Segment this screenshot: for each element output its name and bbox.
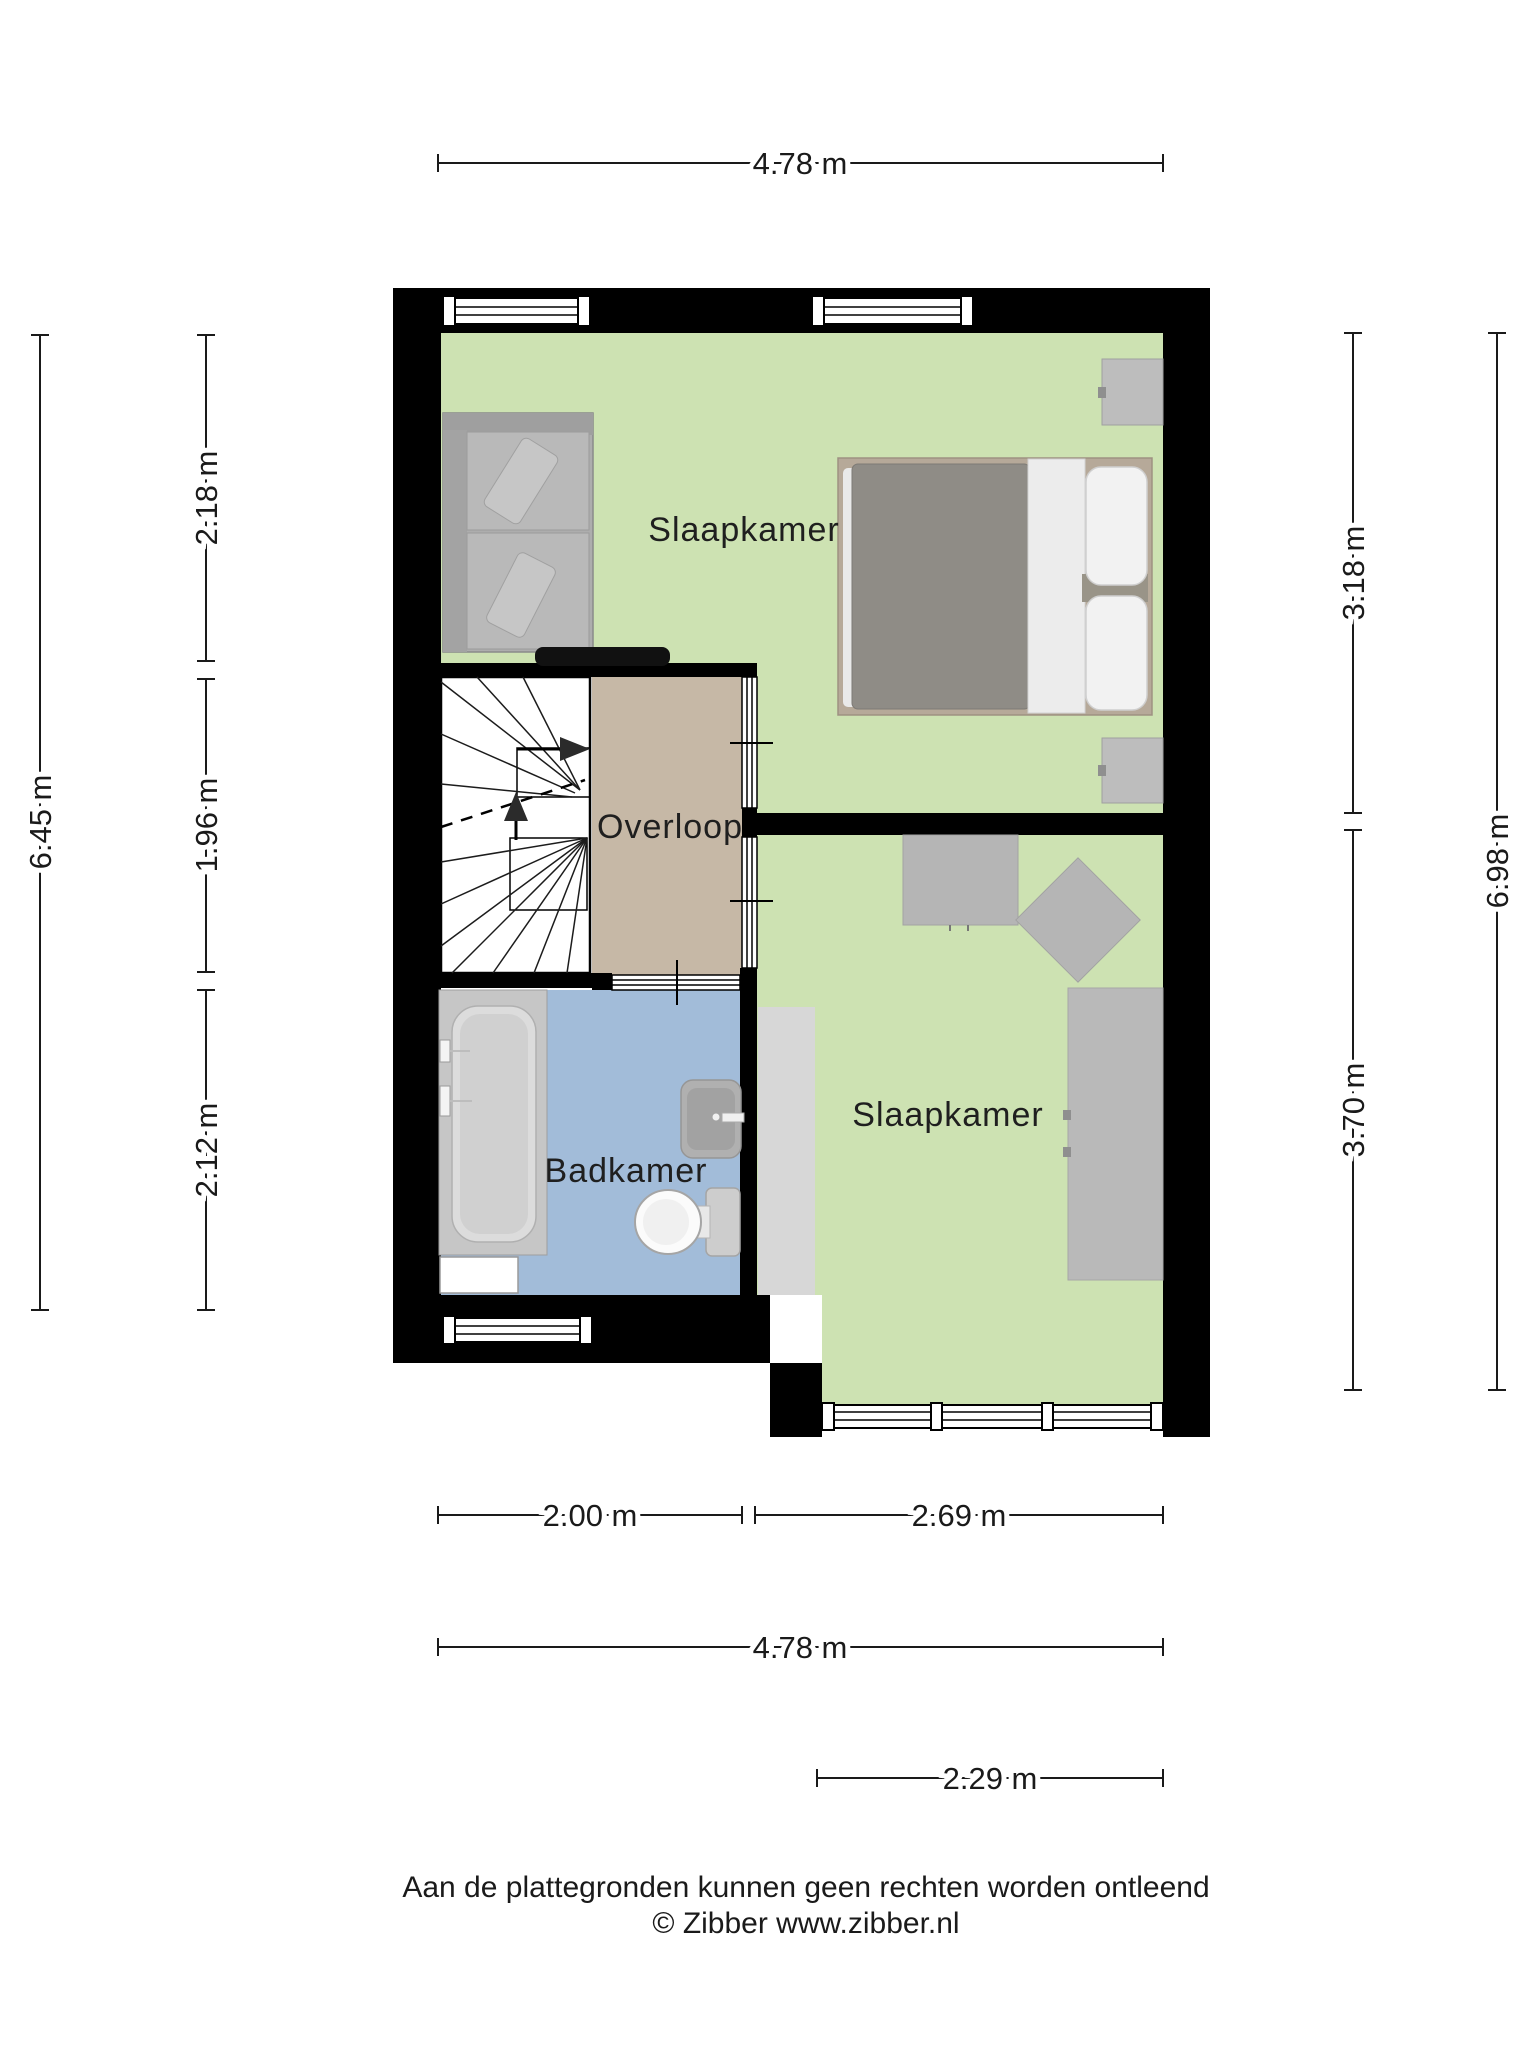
wall-overloop-bedroom2: [740, 968, 757, 1295]
dimension-top: 4.78 m: [438, 146, 1163, 181]
dimension-left-segments: 2.18 m 1.96 m 2.12 m: [189, 335, 224, 1310]
dimension-bottom-segments: 2.00 m 2.69 m: [438, 1498, 1163, 1533]
svg-text:3.70 m: 3.70 m: [1336, 1063, 1371, 1158]
svg-text:3.18 m: 3.18 m: [1336, 526, 1371, 621]
dimension-right-total: 6.98 m: [1480, 333, 1515, 1390]
svg-text:2.12 m: 2.12 m: [189, 1103, 224, 1198]
wardrobe-right: [1063, 988, 1163, 1280]
svg-text:2.00 m: 2.00 m: [543, 1498, 638, 1533]
wall-doorpost-mid: [742, 808, 757, 837]
floorplan-canvas: Slaapkamer Overloop Badkamer Slaapkamer …: [0, 0, 1536, 2048]
desk: [903, 835, 1018, 931]
bed-pillow: [1086, 467, 1147, 585]
svg-text:4.78 m: 4.78 m: [753, 1630, 848, 1665]
staircase: [441, 677, 590, 973]
wall-stairs-badkamer: [441, 973, 592, 988]
sink: [681, 1080, 744, 1158]
wall-doorpost-badkamer: [592, 973, 612, 990]
bathtub: [439, 990, 547, 1255]
bed-pillow: [1086, 596, 1147, 710]
shower-mat: [440, 1257, 518, 1293]
room-label-overloop: Overloop: [597, 808, 743, 846]
window-badkamer: [443, 1316, 592, 1344]
svg-text:2.69 m: 2.69 m: [912, 1498, 1007, 1533]
svg-text:6.98 m: 6.98 m: [1480, 814, 1515, 909]
wall-left: [393, 288, 441, 1363]
toilet: [635, 1188, 740, 1256]
window-top-right: [812, 296, 973, 326]
toilet-tank: [706, 1188, 740, 1256]
nightstand-bottom: [1098, 738, 1163, 803]
footer-credit: © Zibber www.zibber.nl: [652, 1907, 959, 1940]
svg-text:6.45 m: 6.45 m: [23, 775, 58, 870]
sofa: [443, 413, 593, 652]
dimension-bottom-window: 2.29 m: [817, 1761, 1163, 1796]
room-label-badkamer: Badkamer: [545, 1152, 708, 1190]
window-top-left: [443, 296, 590, 326]
footer-disclaimer: Aan de plattegronden kunnen geen rechten…: [402, 1871, 1209, 1904]
dimension-right-segments: 3.18 m 3.70 m: [1336, 333, 1371, 1390]
bath-tap: [440, 1040, 450, 1062]
svg-text:4.78 m: 4.78 m: [753, 146, 848, 181]
svg-text:1.96 m: 1.96 m: [189, 778, 224, 873]
dimension-bottom-total: 4.78 m: [438, 1630, 1163, 1665]
dimension-left-total: 6.45 m: [23, 335, 58, 1310]
nightstand-top: [1098, 359, 1163, 425]
sink-tap: [722, 1113, 744, 1122]
room-label-slaapkamer-2: Slaapkamer: [852, 1096, 1043, 1134]
bath-tap: [440, 1086, 450, 1116]
wall-right: [1163, 288, 1210, 1437]
tv-sideboard: [535, 647, 670, 666]
svg-text:2.29 m: 2.29 m: [943, 1761, 1038, 1796]
double-bed: [838, 458, 1152, 715]
floorplan-page: Slaapkamer Overloop Badkamer Slaapkamer …: [0, 0, 1536, 2048]
window-bedroom2: [822, 1403, 1163, 1430]
bed-sheet: [1028, 459, 1085, 713]
wall-step-corner: [770, 1363, 822, 1437]
wall-bedroom1-bedroom2: [757, 813, 1163, 835]
svg-text:2.18 m: 2.18 m: [189, 451, 224, 546]
wardrobe-left: [758, 1007, 815, 1295]
room-label-slaapkamer-1: Slaapkamer: [648, 511, 839, 549]
